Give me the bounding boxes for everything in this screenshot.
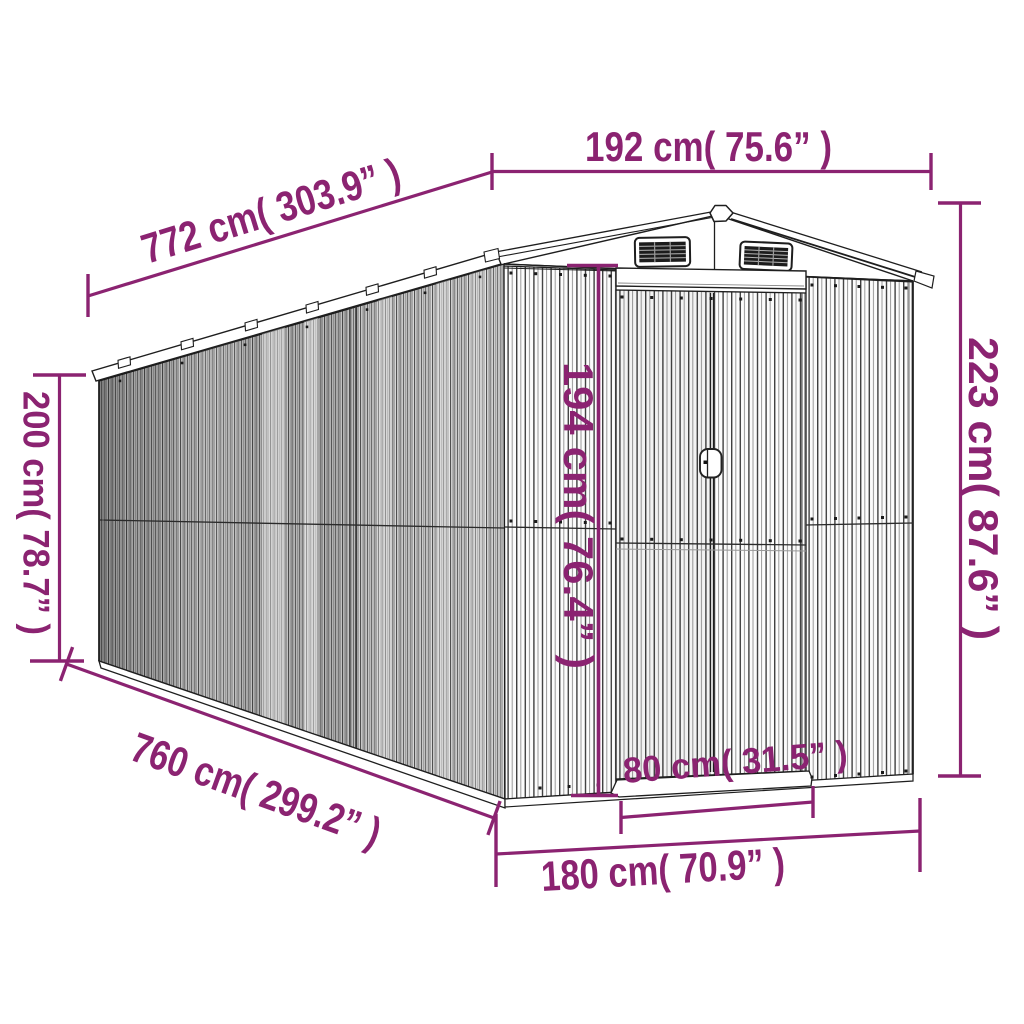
svg-text:192 cm( 75.6” ): 192 cm( 75.6” ) (585, 123, 832, 170)
svg-text:223 cm( 87.6” ): 223 cm( 87.6” ) (960, 337, 1007, 640)
svg-text:200 cm( 78.7” ): 200 cm( 78.7” ) (16, 391, 57, 635)
svg-text:194 cm( 76.4” ): 194 cm( 76.4” ) (555, 362, 602, 669)
